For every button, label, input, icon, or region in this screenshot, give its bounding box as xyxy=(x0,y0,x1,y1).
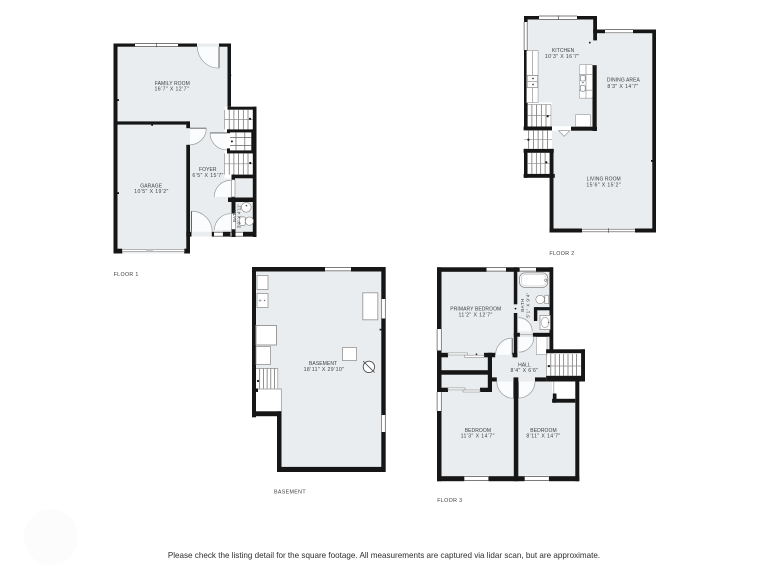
svg-text:Please check the listing detai: Please check the listing detail for the … xyxy=(168,551,600,560)
svg-text:6’5" X 15’7": 6’5" X 15’7" xyxy=(192,173,223,179)
svg-text:11’2" X 12’7": 11’2" X 12’7" xyxy=(458,312,492,318)
svg-text:5’1" X 9’4": 5’1" X 9’4" xyxy=(525,292,530,317)
svg-text:8’4" X 6’6": 8’4" X 6’6" xyxy=(510,368,538,374)
svg-text:DINING AREA: DINING AREA xyxy=(607,78,641,84)
svg-text:FLOOR 1: FLOOR 1 xyxy=(114,272,139,278)
svg-text:11’3" X 14’7": 11’3" X 14’7" xyxy=(461,434,495,440)
svg-text:15’6" X 15’2": 15’6" X 15’2" xyxy=(586,182,621,188)
svg-text:3’9" X 4’11": 3’9" X 4’11" xyxy=(237,203,242,228)
svg-text:10’3" X 16’7": 10’3" X 16’7" xyxy=(545,54,580,60)
svg-text:FLOOR 3: FLOOR 3 xyxy=(437,498,462,504)
svg-text:8’3" X 14’7": 8’3" X 14’7" xyxy=(607,84,638,90)
svg-text:FLOOR 2: FLOOR 2 xyxy=(549,251,574,257)
svg-text:LIVING ROOM: LIVING ROOM xyxy=(587,176,621,182)
svg-text:10’5" X 19’2": 10’5" X 19’2" xyxy=(134,189,169,195)
svg-text:BASEMENT: BASEMENT xyxy=(274,489,306,495)
svg-text:BATH: BATH xyxy=(520,298,525,311)
svg-text:18’11" X 29’10": 18’11" X 29’10" xyxy=(304,367,345,373)
svg-text:16’7" X 12’7": 16’7" X 12’7" xyxy=(155,86,190,92)
svg-text:8’11" X 14’7": 8’11" X 14’7" xyxy=(526,434,560,440)
svg-text:BASEMENT: BASEMENT xyxy=(309,361,337,367)
